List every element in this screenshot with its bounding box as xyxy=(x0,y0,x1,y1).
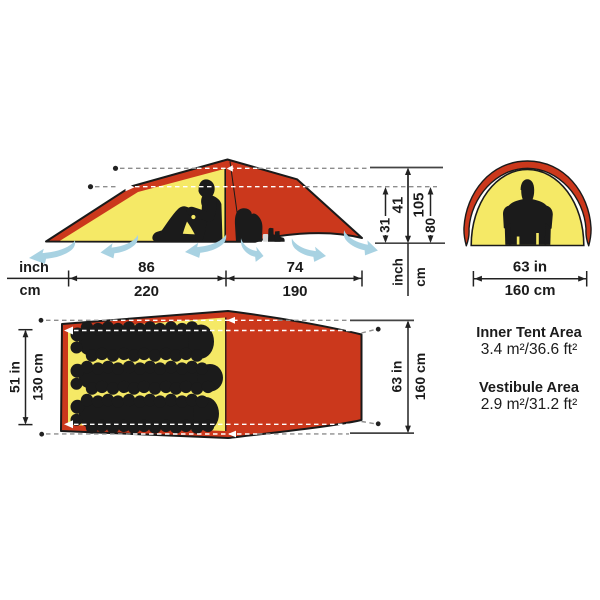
svg-text:inch: inch xyxy=(391,258,406,286)
svg-text:2.9 m²/31.2 ft²: 2.9 m²/31.2 ft² xyxy=(481,396,577,413)
svg-text:74: 74 xyxy=(287,259,304,276)
svg-text:cm: cm xyxy=(413,267,428,287)
svg-text:130 cm: 130 cm xyxy=(30,353,46,400)
svg-text:Inner Tent Area: Inner Tent Area xyxy=(476,325,582,341)
svg-text:41: 41 xyxy=(390,197,407,214)
svg-text:63 in: 63 in xyxy=(389,361,405,393)
svg-text:190: 190 xyxy=(282,283,307,300)
svg-text:63 in: 63 in xyxy=(513,259,547,276)
svg-text:105: 105 xyxy=(411,192,428,217)
svg-text:160 cm: 160 cm xyxy=(412,353,428,400)
svg-text:160 cm: 160 cm xyxy=(505,282,556,299)
svg-text:3.4 m²/36.6 ft²: 3.4 m²/36.6 ft² xyxy=(481,341,577,358)
svg-text:Vestibule Area: Vestibule Area xyxy=(479,380,580,396)
svg-text:31: 31 xyxy=(378,217,393,233)
svg-text:80: 80 xyxy=(423,218,438,233)
svg-text:51 in: 51 in xyxy=(7,361,23,393)
svg-text:cm: cm xyxy=(20,283,41,299)
svg-text:86: 86 xyxy=(138,259,155,276)
svg-text:220: 220 xyxy=(134,283,159,300)
